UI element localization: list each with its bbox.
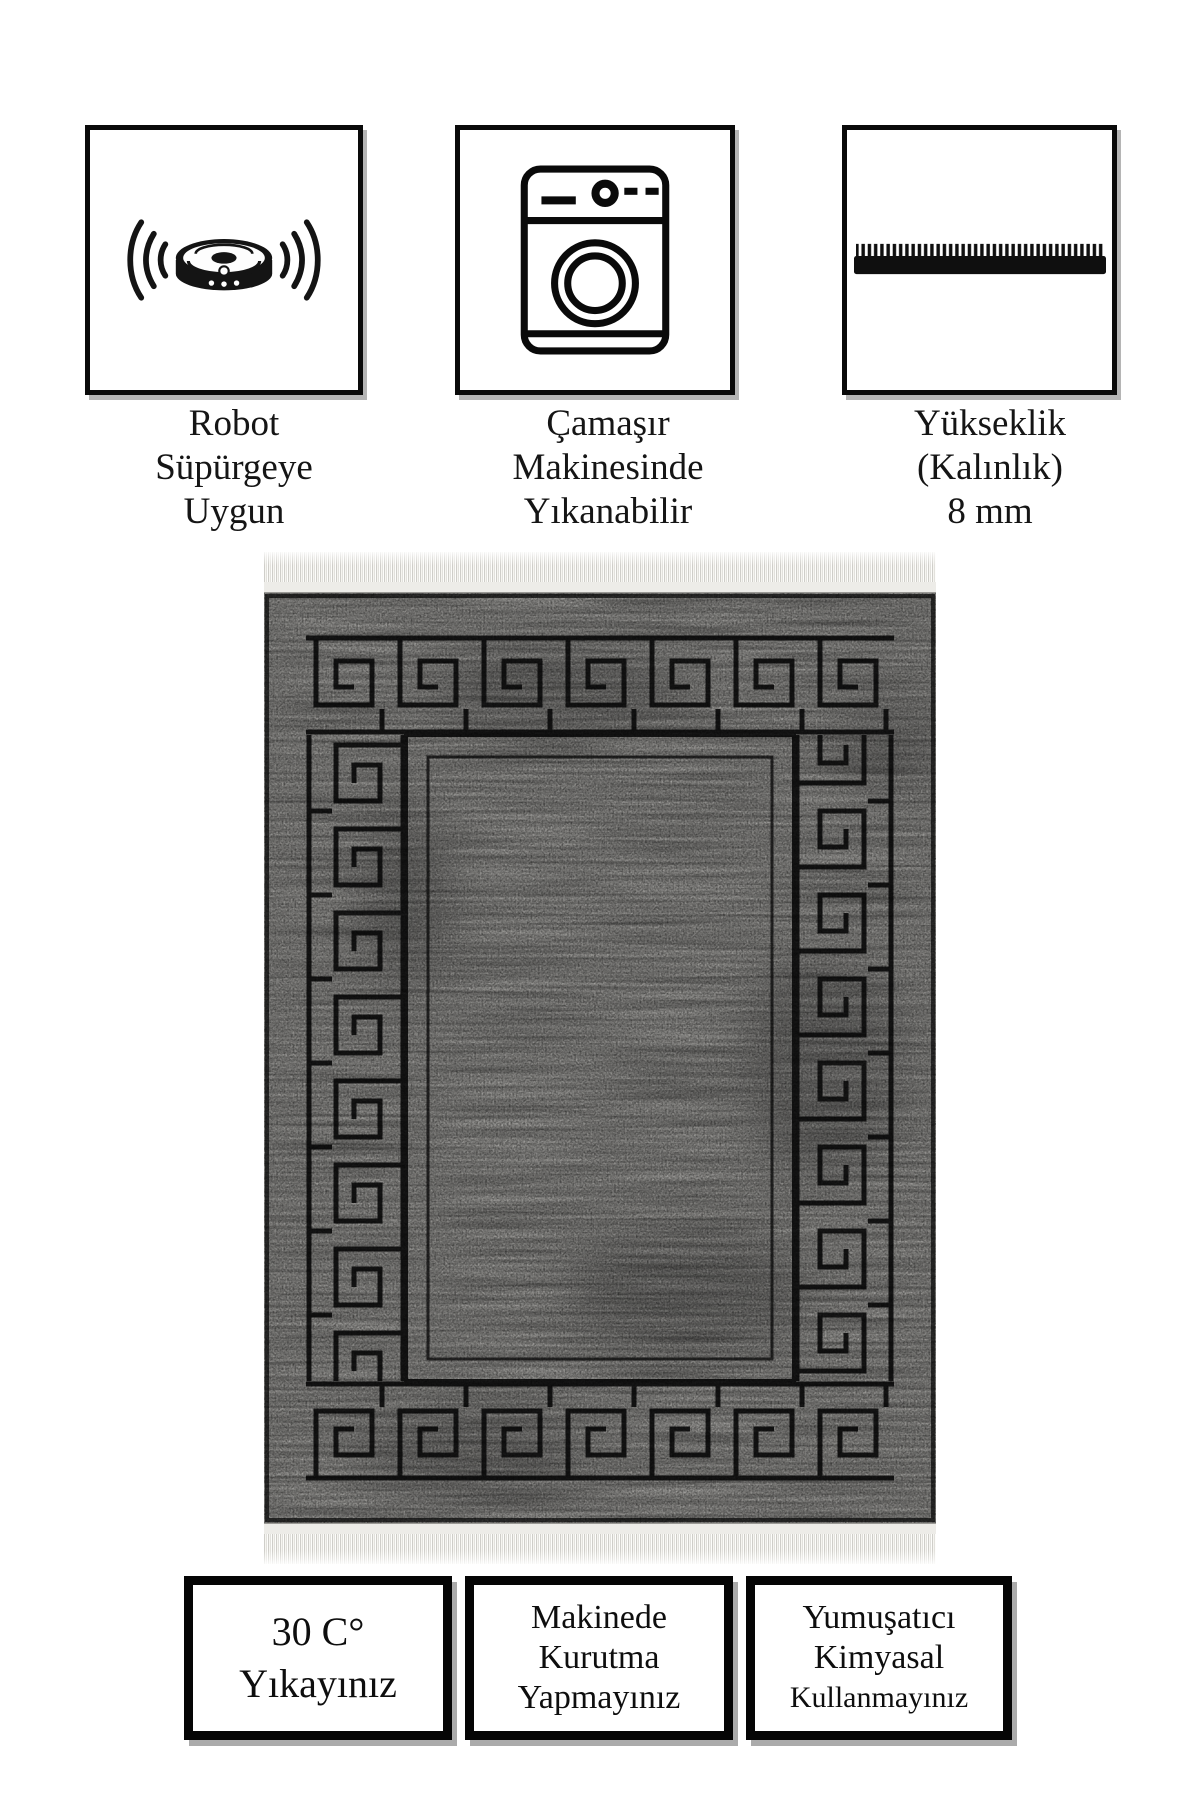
caption-line: Yükseklik [820, 402, 1160, 446]
care-line: Yapmayınız [518, 1678, 681, 1718]
rug-edge-band-top [264, 582, 936, 593]
caption-line: Çamaşır [438, 402, 778, 446]
caption-line: (Kalınlık) [820, 446, 1160, 490]
caption-line: Yıkanabilir [438, 490, 778, 534]
feature-caption-washable: Çamaşır Makinesinde Yıkanabilir [438, 402, 778, 534]
rug-fringe-bottom [264, 1534, 936, 1564]
care-box-wash-30: 30 C° Yıkayınız [184, 1576, 452, 1740]
product-infographic: Robot Süpürgeye Uygun Çamaşır Makinesind… [0, 0, 1200, 1800]
care-line: Kullanmayınız [790, 1678, 968, 1718]
caption-line: Robot [64, 402, 404, 446]
caption-line: Makinesinde [438, 446, 778, 490]
caption-line: Süpürgeye [64, 446, 404, 490]
feature-caption-robot: Robot Süpürgeye Uygun [64, 402, 404, 534]
care-line: Makinede [531, 1598, 667, 1638]
care-line: 30 C° [272, 1606, 365, 1658]
care-box-no-softener: Yumuşatıcı Kimyasal Kullanmayınız [746, 1576, 1012, 1740]
washing-machine-icon [519, 164, 671, 356]
caption-line: 8 mm [820, 490, 1160, 534]
feature-box-robot-vacuum [85, 125, 363, 395]
rug-product-photo [264, 552, 936, 1564]
feature-box-pile-height [842, 125, 1117, 395]
care-line: Yumuşatıcı [803, 1598, 956, 1638]
care-line: Kimyasal [814, 1638, 944, 1678]
care-box-no-machine-dry: Makinede Kurutma Yapmayınız [465, 1576, 733, 1740]
robot-vacuum-icon [118, 216, 330, 304]
rug-fringe-top [264, 552, 936, 582]
feature-caption-height: Yükseklik (Kalınlık) 8 mm [820, 402, 1160, 534]
care-line: Kurutma [539, 1638, 660, 1678]
feature-box-machine-washable [455, 125, 735, 395]
caption-line: Uygun [64, 490, 404, 534]
pile-height-icon [854, 243, 1106, 277]
rug-body [264, 593, 936, 1523]
rug-edge-band-bottom [264, 1523, 936, 1534]
care-line: Yıkayınız [239, 1658, 397, 1710]
